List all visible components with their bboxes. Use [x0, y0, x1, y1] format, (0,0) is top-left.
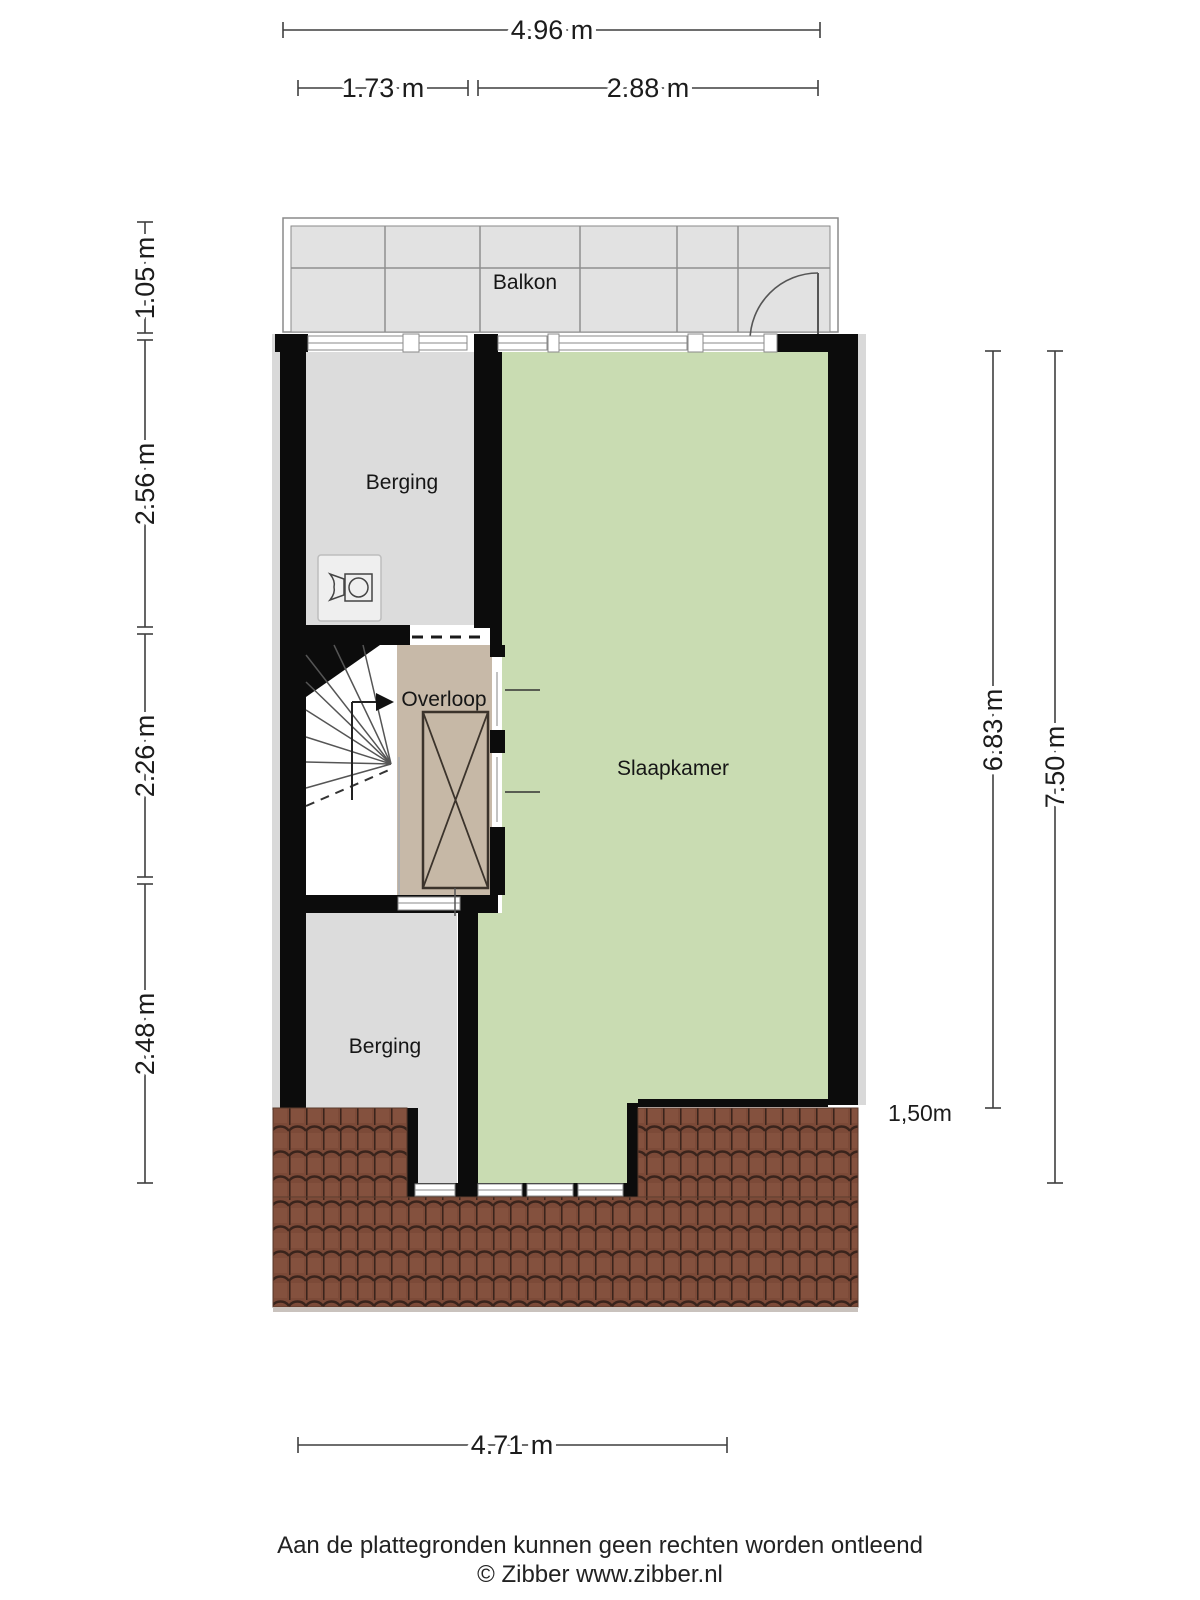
wall-shadow-right: [858, 334, 866, 1105]
wall-berging-slaapkamer: [474, 352, 502, 645]
wardrobe-icon: [423, 712, 488, 916]
wall-left: [280, 334, 306, 1110]
roof-right-patch: [638, 1108, 858, 1197]
window-mullion: [764, 334, 777, 352]
dimension-left-overloop: 2.26 m: [130, 634, 160, 877]
wall-overloop-slaapkamer: [490, 730, 505, 753]
dimension-label: 7.50 m: [1040, 726, 1070, 809]
dimension-label: 2.88 m: [607, 73, 690, 103]
dimension-bottom: 4.71 m: [298, 1430, 727, 1460]
wall-top-middle: [474, 334, 498, 352]
wall-under-overloop: [280, 895, 498, 913]
window-mullion: [403, 334, 419, 352]
dimension-label: 2.48 m: [130, 993, 160, 1076]
floorplan-page: Balkon: [0, 0, 1200, 1600]
dimension-left-balcony: 1.05 m: [130, 222, 160, 333]
dimension-label: 4.71 m: [471, 1430, 554, 1460]
wall-top-corner-left: [275, 334, 308, 352]
roof-lower: [273, 1197, 858, 1307]
window-mullion: [688, 334, 703, 352]
dimension-top-left: 1.73 m: [298, 73, 468, 103]
wall-shadow-left: [272, 334, 280, 1110]
dimension-label: 1.73 m: [342, 73, 425, 103]
window-mullion: [548, 334, 559, 352]
dimension-top-total: 4.96 m: [283, 15, 820, 45]
wall-bottom-right-stub: [627, 1103, 638, 1197]
dimension-label: 6.83 m: [978, 689, 1008, 772]
floor-plan-canvas: Balkon: [0, 0, 1200, 1600]
top-windows: [308, 334, 777, 352]
dimension-label: 2.56 m: [130, 443, 160, 526]
room-label-balkon: Balkon: [493, 271, 557, 294]
dimension-label: 1.05 m: [130, 237, 160, 320]
dimension-label: 4.96 m: [511, 15, 594, 45]
dimension-left-berging2: 2.48 m: [130, 884, 160, 1183]
dimension-right-inner: 6.83 m: [978, 351, 1008, 1108]
balcony: Balkon: [283, 218, 838, 341]
room-label-overloop: Overloop: [401, 688, 486, 711]
wall-top-corner-right: [777, 334, 858, 352]
room-label-berging-top: Berging: [366, 471, 438, 494]
bottom-windows: [415, 1184, 623, 1196]
wall-under-berging: [280, 625, 410, 645]
footer-copyright: © Zibber www.zibber.nl: [477, 1561, 723, 1588]
dimension-top-right: 2.88 m: [478, 73, 818, 103]
roof-shadow-edge: [273, 1307, 858, 1312]
dimension-right-outer: 7.50 m: [1040, 351, 1070, 1183]
footer-disclaimer: Aan de plattegronden kunnen geen rechten…: [277, 1532, 923, 1559]
room-label-slaapkamer: Slaapkamer: [617, 757, 729, 780]
washing-machine-icon: [318, 555, 381, 621]
dimension-left-berging: 2.56 m: [130, 340, 160, 627]
wall-berging2-slaapkamer: [458, 913, 478, 1183]
wall-overloop-slaapkamer: [490, 645, 505, 657]
wall-bottom-left-stub: [407, 1108, 418, 1185]
roof-left-patch: [273, 1108, 407, 1197]
wall-overloop-slaapkamer: [490, 827, 505, 895]
room-label-berging-bottom: Berging: [349, 1035, 421, 1058]
wall-notch: [638, 1099, 828, 1107]
balcony-floor: [291, 226, 830, 332]
wall-right: [828, 334, 858, 1105]
dimension-label: 2.26 m: [130, 715, 160, 798]
knee-wall-height-label: 1,50m: [888, 1100, 952, 1126]
